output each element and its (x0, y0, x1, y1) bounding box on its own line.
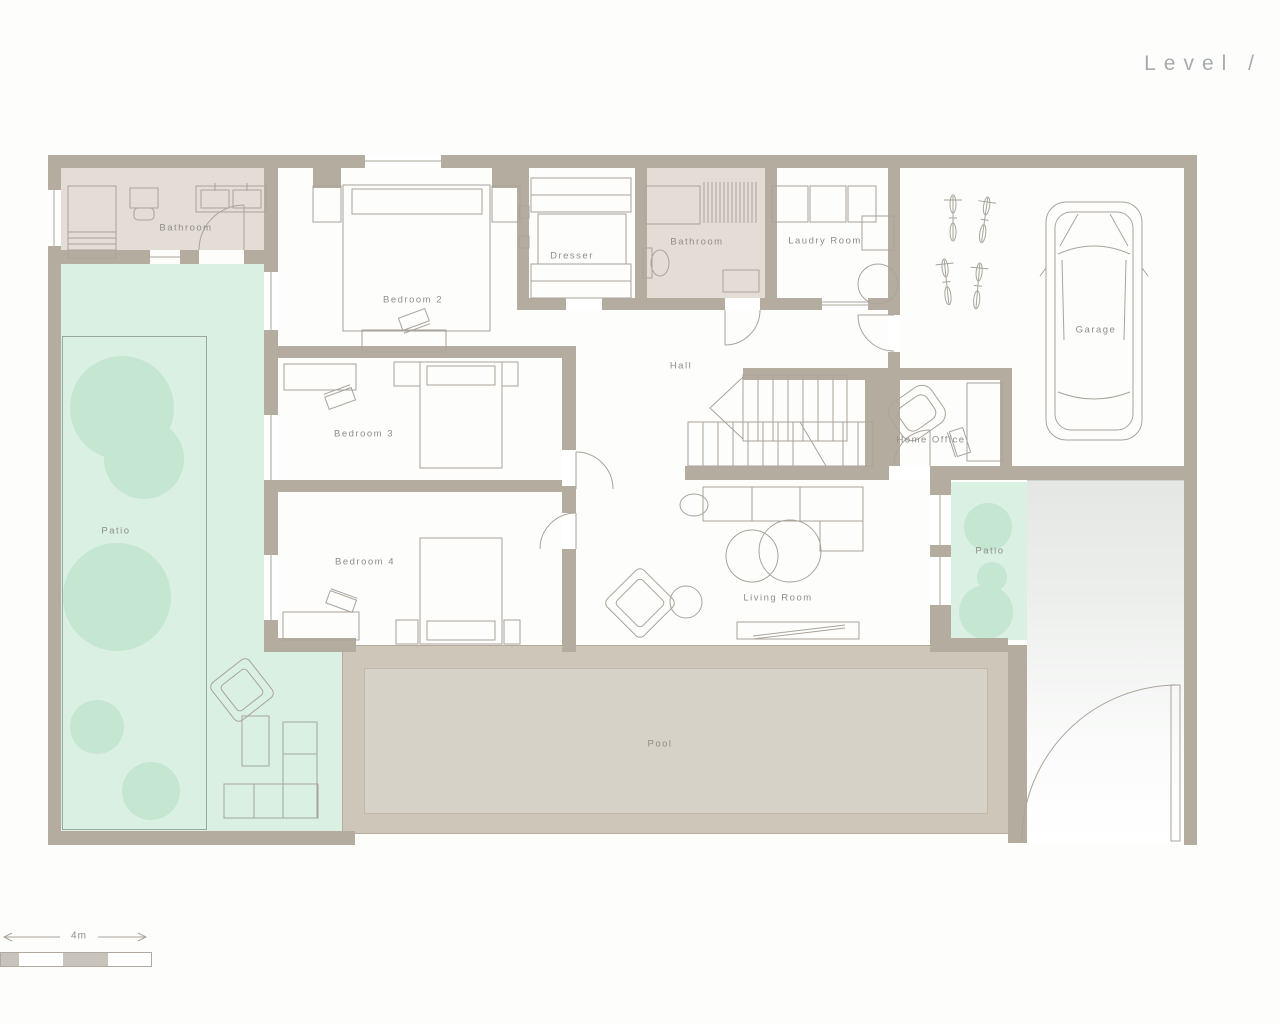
tree-icon (104, 419, 184, 499)
floor-plan: Bathroom Bedroom 2 Dresser Bathroom Laud… (0, 0, 1280, 1024)
wall-segment (278, 480, 576, 492)
tree-icon (70, 700, 124, 754)
wall-segment (743, 368, 877, 380)
side-table-icon (670, 586, 702, 618)
door-arc (576, 452, 613, 489)
room-label-bedroom-2: Bedroom 2 (383, 295, 443, 306)
wall-segment (685, 466, 1197, 480)
car-icon (1040, 202, 1148, 440)
wall-segment (517, 167, 529, 310)
page-title: Level / (1144, 52, 1262, 76)
scale-bar-segment (63, 953, 108, 966)
window-opening (264, 272, 278, 330)
door-opening (566, 298, 602, 310)
wall-segment (865, 368, 877, 478)
room-label-dresser: Dresser (550, 251, 594, 262)
window-opening (48, 190, 61, 246)
wall-segment (1000, 368, 1012, 478)
wall-segment (1184, 155, 1197, 845)
bed-icon (396, 538, 520, 644)
wall-segment (60, 250, 150, 264)
wall-segment (765, 167, 777, 310)
wall-segment (877, 368, 889, 478)
wall-segment (48, 831, 355, 845)
window-opening (264, 555, 278, 620)
wall-segment (244, 250, 266, 264)
floor-bathroom-2 (647, 167, 765, 298)
room-label-bathroom-1: Bathroom (159, 223, 212, 234)
coffee-table-icon (726, 520, 821, 582)
wardrobe-rack-icon (519, 178, 631, 298)
room-label-pool: Pool (647, 739, 672, 750)
wall-segment (180, 250, 199, 264)
room-label-bathroom-2: Bathroom (670, 237, 723, 248)
door-arc (725, 310, 760, 345)
bicycle-icon (967, 262, 989, 309)
sofa-icon (680, 487, 863, 551)
desk-icon (283, 589, 359, 640)
wall-segment (635, 167, 647, 310)
wall-segment (930, 638, 1008, 652)
staircase-icon (688, 375, 873, 466)
room-label-patio-right: Patio (975, 546, 1004, 557)
wall-segment (562, 346, 576, 652)
bicycle-icon (935, 258, 958, 306)
room-label-hall: Hall (670, 361, 692, 372)
wall-nub (313, 168, 341, 188)
bed-icon (394, 362, 518, 468)
tree-icon (122, 762, 180, 820)
pool (364, 668, 988, 814)
room-label-laundry-room: Laudry Room (788, 236, 862, 247)
bicycle-icon (944, 195, 962, 241)
window-opening (930, 557, 951, 605)
room-label-bedroom-3: Bedroom 3 (334, 429, 394, 440)
scale-bar-segment (1, 953, 19, 966)
driveway (1027, 480, 1184, 844)
window-opening (365, 155, 441, 168)
door-opening (888, 315, 900, 352)
room-label-bedroom-4: Bedroom 4 (335, 557, 395, 568)
room-label-patio-left: Patio (101, 526, 130, 537)
scale-bar (0, 952, 152, 967)
tv-console-icon (737, 622, 859, 639)
wall-segment (1008, 645, 1027, 843)
desk-icon (284, 364, 356, 409)
floor-bathroom-1 (60, 167, 266, 250)
window-opening (264, 415, 278, 480)
door-opening (725, 298, 760, 310)
scale-bar-label: 4m (71, 931, 87, 942)
wall-segment (877, 368, 1012, 380)
window-opening (930, 495, 951, 545)
room-label-garage: Garage (1076, 325, 1117, 336)
wall-segment (264, 638, 356, 652)
tree-icon (964, 503, 1012, 551)
armchair-icon (603, 566, 677, 640)
wall-segment (278, 346, 576, 358)
bed-icon (313, 185, 520, 331)
bicycle-icon (973, 196, 997, 244)
tree-icon (63, 543, 171, 651)
wall-segment (264, 167, 278, 262)
room-label-living-room: Living Room (743, 593, 812, 604)
wall-nub (492, 168, 520, 188)
tree-icon (959, 585, 1013, 639)
door-opening (889, 466, 930, 480)
wall-segment (48, 155, 1197, 168)
door-opening (822, 298, 868, 310)
desk-icon (947, 383, 1002, 461)
door-opening (562, 450, 576, 486)
door-opening (562, 513, 576, 549)
room-label-home-office: Home Office (896, 435, 965, 446)
